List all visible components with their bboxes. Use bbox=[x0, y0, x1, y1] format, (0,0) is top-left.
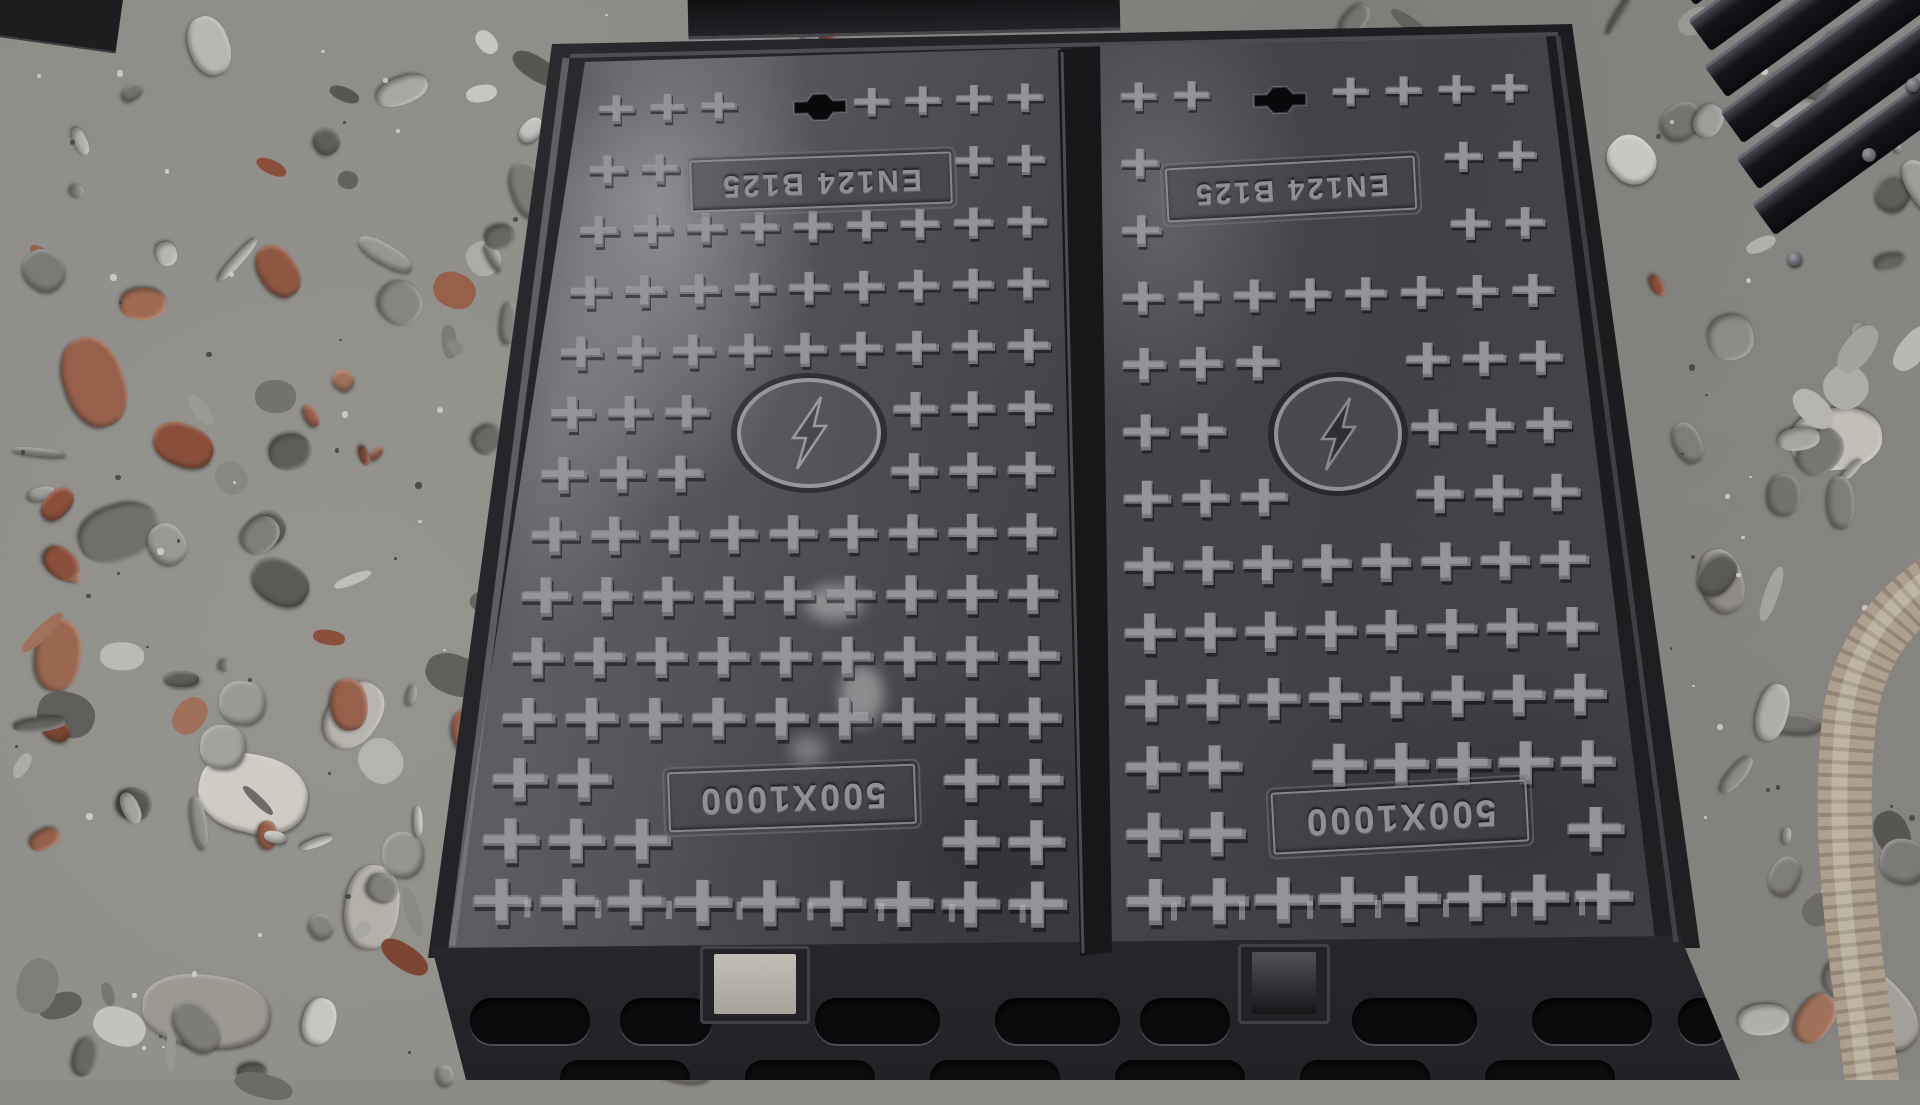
stone bbox=[1796, 886, 1843, 931]
stone bbox=[254, 154, 289, 181]
stone bbox=[233, 481, 236, 484]
stone bbox=[1827, 814, 1830, 817]
stone bbox=[229, 272, 234, 277]
apron-slot bbox=[620, 998, 712, 1044]
standard-marking-plate-left: EN124 B125 bbox=[689, 151, 953, 212]
stone bbox=[86, 594, 90, 598]
stone bbox=[117, 70, 124, 77]
paint-scuff bbox=[840, 665, 884, 725]
stone bbox=[398, 885, 426, 938]
stone bbox=[418, 520, 421, 523]
apron-slot-lower bbox=[1485, 1060, 1615, 1096]
stone bbox=[1725, 494, 1730, 499]
stone bbox=[1749, 681, 1794, 746]
stone bbox=[1826, 476, 1854, 529]
stone bbox=[337, 169, 360, 190]
stone bbox=[110, 274, 117, 281]
stone bbox=[1736, 573, 1741, 578]
stone bbox=[1667, 418, 1709, 467]
stone bbox=[413, 806, 423, 837]
stone bbox=[115, 475, 121, 481]
stone bbox=[118, 78, 146, 104]
size-marking-text: 500X1000 bbox=[1303, 791, 1498, 843]
stone bbox=[51, 329, 138, 436]
stone bbox=[99, 981, 117, 1007]
apron-slot-lower bbox=[930, 1060, 1060, 1096]
stone bbox=[216, 678, 267, 727]
stone bbox=[405, 683, 420, 707]
stone bbox=[1705, 394, 1708, 397]
stone bbox=[184, 391, 218, 428]
apron-slot bbox=[995, 998, 1120, 1044]
stone bbox=[1746, 278, 1752, 284]
stone bbox=[1737, 1002, 1790, 1037]
stone bbox=[1749, 476, 1752, 479]
stone bbox=[192, 971, 198, 977]
stone bbox=[1862, 605, 1868, 611]
stone bbox=[1717, 724, 1723, 730]
stone bbox=[343, 121, 346, 124]
stone bbox=[11, 445, 66, 458]
stone bbox=[10, 751, 35, 780]
stone bbox=[329, 366, 358, 395]
stone bbox=[605, 14, 608, 17]
stone bbox=[67, 182, 86, 201]
stone bbox=[1704, 816, 1707, 819]
stone bbox=[215, 235, 260, 283]
stone bbox=[119, 287, 166, 321]
stone bbox=[157, 548, 164, 555]
notch-filler bbox=[1252, 952, 1316, 1014]
stone bbox=[181, 11, 238, 81]
stone bbox=[396, 129, 400, 133]
stone bbox=[1766, 788, 1770, 792]
paint-scuff bbox=[790, 735, 826, 765]
stone bbox=[304, 909, 339, 944]
stone bbox=[26, 823, 63, 855]
stone bbox=[394, 557, 397, 560]
stone bbox=[443, 649, 446, 652]
stone bbox=[217, 657, 233, 674]
stone bbox=[206, 352, 212, 358]
apron-slot-lower bbox=[1115, 1060, 1245, 1096]
stone bbox=[353, 231, 415, 278]
stone bbox=[335, 448, 340, 453]
stone bbox=[247, 237, 309, 305]
frame-notch-left bbox=[700, 946, 810, 1024]
stone bbox=[1691, 555, 1695, 559]
stone bbox=[376, 932, 433, 982]
stone bbox=[199, 723, 246, 769]
stone bbox=[1873, 251, 1908, 274]
stone bbox=[1881, 602, 1899, 649]
stone bbox=[1776, 785, 1780, 789]
stone bbox=[383, 78, 388, 83]
stone bbox=[465, 83, 499, 105]
stone bbox=[298, 995, 341, 1048]
paint-scuff bbox=[805, 585, 863, 621]
stone bbox=[165, 169, 169, 173]
apron-slot bbox=[1352, 998, 1477, 1044]
stone bbox=[21, 450, 26, 455]
stone bbox=[1604, 0, 1640, 36]
stone bbox=[117, 572, 120, 575]
stone bbox=[1744, 232, 1778, 257]
standard-marking-text: EN124 B125 bbox=[1192, 167, 1390, 210]
stone bbox=[408, 1051, 411, 1054]
stone bbox=[146, 646, 148, 648]
stone bbox=[328, 772, 331, 775]
stone bbox=[1782, 827, 1792, 844]
stone bbox=[437, 407, 443, 413]
stone bbox=[299, 833, 335, 853]
stone bbox=[1856, 740, 1860, 744]
stone bbox=[1646, 273, 1668, 299]
stone bbox=[1756, 565, 1788, 623]
stone bbox=[254, 379, 296, 414]
stone bbox=[119, 301, 122, 304]
stone bbox=[381, 831, 425, 879]
apron-slot-lower bbox=[1300, 1060, 1430, 1096]
stone bbox=[1767, 473, 1801, 515]
stone bbox=[153, 240, 179, 268]
apron-slot bbox=[1532, 998, 1652, 1044]
stone bbox=[1741, 536, 1745, 540]
stone bbox=[472, 27, 502, 58]
stone bbox=[159, 1035, 162, 1038]
stone bbox=[299, 402, 321, 429]
stone bbox=[142, 1046, 146, 1050]
stone bbox=[1909, 815, 1916, 822]
standard-marking-text: EN124 B125 bbox=[720, 161, 923, 202]
stone bbox=[321, 50, 324, 53]
stone bbox=[231, 1067, 294, 1105]
stone bbox=[132, 993, 137, 998]
stone bbox=[1689, 364, 1696, 371]
stone bbox=[1886, 319, 1920, 377]
notch-filler bbox=[714, 954, 796, 1014]
stone bbox=[37, 74, 41, 78]
apron-slot bbox=[1140, 998, 1230, 1044]
stone bbox=[1670, 647, 1672, 649]
stone bbox=[435, 1063, 456, 1087]
stone bbox=[1692, 685, 1695, 688]
stone bbox=[373, 68, 432, 112]
stone bbox=[100, 642, 145, 671]
stone bbox=[162, 1046, 165, 1049]
stone bbox=[163, 671, 199, 688]
stone bbox=[15, 745, 18, 748]
apron-slot bbox=[815, 998, 940, 1044]
stone bbox=[68, 1033, 102, 1078]
stone bbox=[308, 123, 344, 159]
stone bbox=[243, 548, 317, 616]
stone bbox=[415, 482, 422, 489]
stone bbox=[369, 273, 430, 334]
stone bbox=[14, 242, 72, 299]
stone bbox=[1763, 851, 1807, 900]
stone bbox=[342, 411, 348, 417]
size-marking-plate-left: 500X1000 bbox=[667, 764, 917, 833]
apron-slot-lower bbox=[560, 1060, 690, 1096]
bolt-head bbox=[1788, 252, 1802, 266]
stone bbox=[209, 455, 254, 500]
size-marking-text: 500X1000 bbox=[697, 774, 887, 823]
stone bbox=[333, 568, 372, 591]
bolt-head bbox=[1862, 148, 1876, 162]
stone bbox=[1703, 310, 1758, 365]
apron-slot bbox=[470, 998, 590, 1044]
stone bbox=[1890, 805, 1893, 808]
stone bbox=[258, 933, 262, 937]
apron-slot-lower bbox=[745, 1060, 875, 1096]
stone bbox=[339, 339, 341, 341]
stone bbox=[513, 217, 518, 222]
stone bbox=[1656, 134, 1661, 139]
stone bbox=[356, 444, 372, 467]
frame-notch-right bbox=[1238, 944, 1330, 1024]
stone bbox=[1716, 753, 1757, 798]
stone bbox=[312, 627, 346, 646]
stone bbox=[327, 82, 361, 107]
bolt-head bbox=[1906, 78, 1920, 92]
stone bbox=[266, 431, 313, 473]
stone bbox=[86, 813, 93, 820]
stone bbox=[1836, 653, 1886, 698]
